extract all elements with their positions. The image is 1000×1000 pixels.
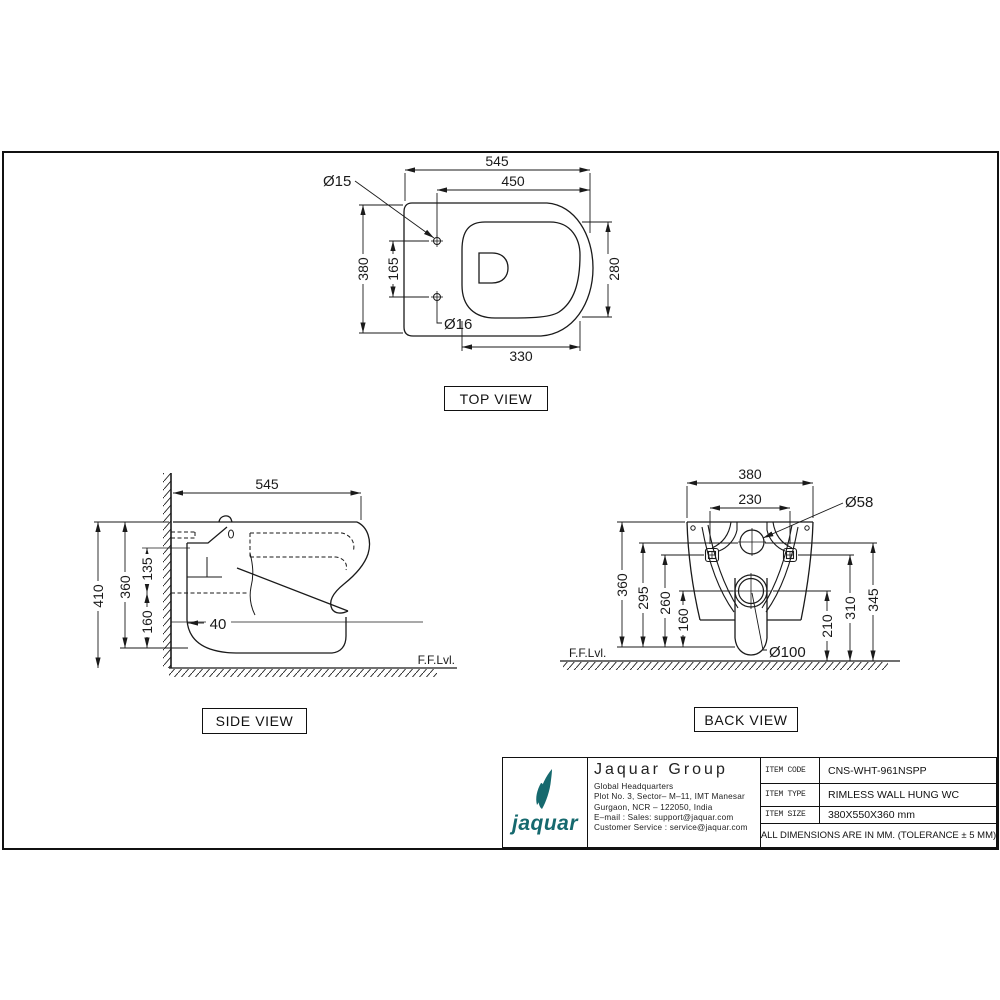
drawing-sheet: 545 450 380 165 280 330 Ø15 Ø16 TOP VIEW… — [0, 0, 1000, 1000]
title-block: jaquar Jaquar Group Global Headquarters … — [502, 757, 997, 848]
dim-back-295: 295 — [635, 586, 651, 610]
dim-side-360: 360 — [117, 575, 133, 599]
dim-top-450: 450 — [501, 173, 525, 189]
dim-top-545: 545 — [485, 155, 509, 169]
address-line: Customer Service : service@jaquar.com — [594, 823, 756, 833]
dim-top-280: 280 — [606, 257, 622, 281]
top-view-label: TOP VIEW — [444, 386, 548, 411]
company-name: Jaquar Group — [594, 761, 756, 779]
company-address-cell: Jaquar Group Global Headquarters Plot No… — [588, 758, 761, 847]
address-line: Gurgaon, NCR – 122050, India — [594, 803, 756, 813]
dim-side-40: 40 — [210, 616, 227, 633]
item-type-label: ITEM TYPE — [761, 783, 820, 806]
item-type-row: ITEM TYPE RIMLESS WALL HUNG WC — [761, 783, 996, 807]
jaquar-swoosh-icon — [528, 769, 562, 811]
back-view-drawing: F.F.Lvl. — [555, 460, 915, 730]
address-line: Plot No. 3, Sector– M–11, IMT Manesar — [594, 792, 756, 802]
dim-top-165: 165 — [385, 257, 401, 281]
item-size-row: ITEM SIZE 380X550X360 mm — [761, 806, 996, 824]
dim-top-dia16: Ø16 — [444, 316, 472, 333]
dim-back-dia58: Ø58 — [845, 494, 873, 511]
dim-top-380: 380 — [355, 257, 371, 281]
dim-back-345: 345 — [865, 588, 881, 612]
side-view-label: SIDE VIEW — [202, 708, 307, 734]
item-table: ITEM CODE CNS-WHT-961NSPP ITEM TYPE RIML… — [761, 758, 996, 847]
wc-side-outline — [173, 516, 370, 653]
dim-side-410: 410 — [90, 584, 106, 608]
dim-side-160: 160 — [139, 610, 155, 634]
dim-back-160: 160 — [675, 608, 691, 632]
item-code-label: ITEM CODE — [761, 758, 820, 783]
side-view-drawing: F.F.Lvl. — [80, 465, 470, 735]
floor-hatch — [563, 662, 888, 670]
hidden-seat-lines — [171, 532, 354, 593]
wc-top-outline — [404, 203, 593, 336]
dim-top-330: 330 — [509, 348, 533, 364]
item-size-value: 380X550X360 mm — [820, 806, 996, 823]
address-line: Global Headquarters — [594, 782, 756, 792]
jaquar-wordmark: jaquar — [512, 812, 578, 836]
item-size-label: ITEM SIZE — [761, 806, 820, 823]
dim-top-dia15: Ø15 — [323, 173, 351, 190]
wall-hatch — [163, 473, 171, 668]
dim-back-380: 380 — [738, 466, 762, 482]
brand-logo: jaquar — [503, 758, 588, 847]
dim-side-545: 545 — [255, 476, 279, 492]
dim-back-dia100: Ø100 — [769, 644, 806, 661]
floor-level-label-back: F.F.Lvl. — [569, 646, 606, 660]
top-view-drawing: 545 450 380 165 280 330 Ø15 Ø16 — [315, 155, 655, 415]
address-line: E–mail : Sales: support@jaquar.com — [594, 813, 756, 823]
dim-side-135: 135 — [139, 557, 155, 581]
inlet-hole — [738, 528, 766, 556]
item-type-value: RIMLESS WALL HUNG WC — [820, 783, 996, 806]
item-code-row: ITEM CODE CNS-WHT-961NSPP — [761, 758, 996, 784]
dim-back-230: 230 — [738, 491, 762, 507]
dim-back-210: 210 — [819, 614, 835, 638]
dim-back-260: 260 — [657, 591, 673, 615]
flush-opening — [479, 253, 508, 283]
dim-back-310: 310 — [842, 596, 858, 620]
floor-level-label-side: F.F.Lvl. — [418, 653, 455, 667]
floor-hatch — [169, 669, 437, 677]
item-code-value: CNS-WHT-961NSPP — [820, 758, 996, 783]
dim-back-360: 360 — [614, 573, 630, 597]
back-view-label: BACK VIEW — [694, 707, 798, 732]
tolerance-note: ALL DIMENSIONS ARE IN MM. (TOLERANCE ± 5… — [761, 823, 996, 847]
fixing-holes — [431, 235, 443, 303]
